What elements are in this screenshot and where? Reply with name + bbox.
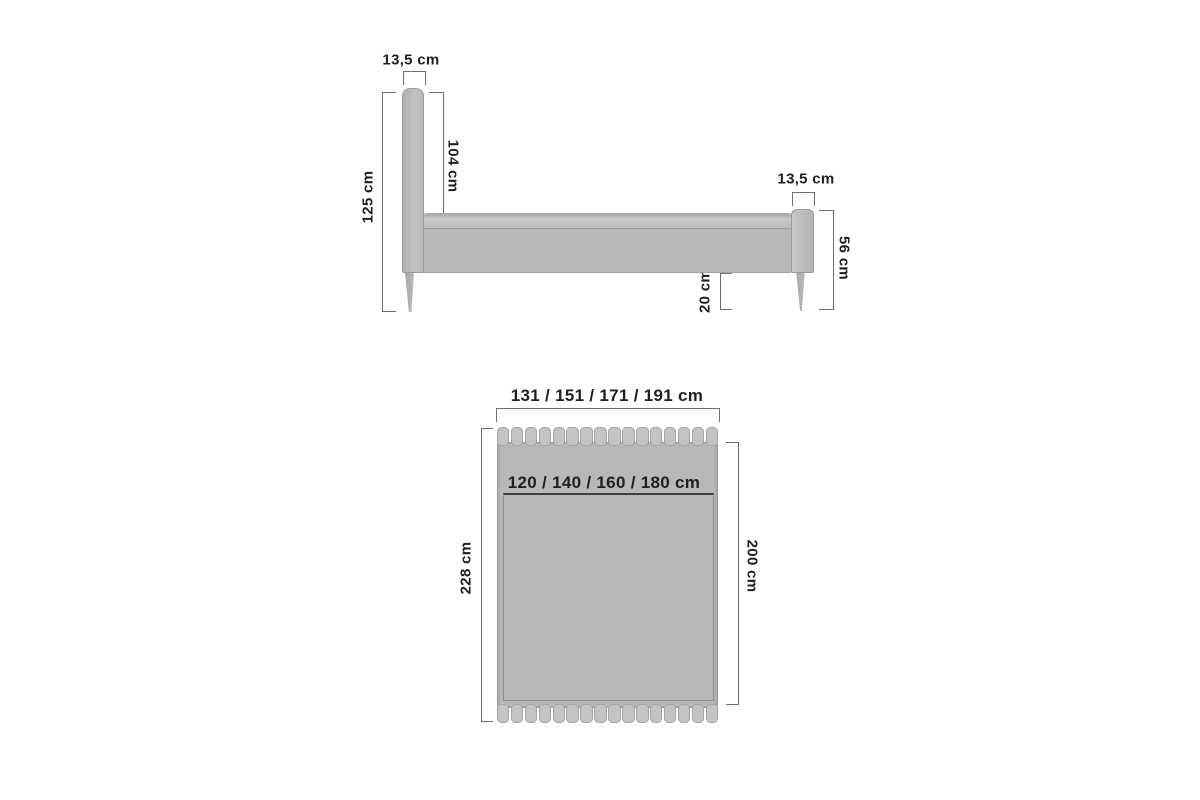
bed-frame-rail bbox=[423, 228, 791, 273]
bed-dimension-diagram: 13,5 cm 125 cm 104 cm 26 cm 13,5 cm 56 c… bbox=[0, 0, 1200, 800]
dim-footboard-thickness-label: 13,5 cm bbox=[777, 171, 834, 188]
dim-footboard-height-tick-bottom bbox=[819, 309, 833, 310]
tufting-segment bbox=[636, 704, 648, 723]
footboard-tufting bbox=[496, 704, 719, 723]
dim-overall-length-label: 228 cm bbox=[458, 542, 475, 595]
tufting-segment bbox=[650, 427, 662, 446]
tufting-segment bbox=[664, 704, 676, 723]
tufting-segment bbox=[566, 704, 578, 723]
tufting-segment bbox=[608, 427, 620, 446]
dim-overall-length-tick-bottom bbox=[481, 721, 493, 722]
dim-headboard-height-label: 104 cm bbox=[445, 140, 462, 193]
dim-total-height-tick-top bbox=[382, 92, 396, 93]
headboard-panel bbox=[402, 88, 424, 273]
tufting-segment bbox=[525, 704, 537, 723]
dim-total-height-line bbox=[382, 92, 383, 312]
tufting-segment bbox=[566, 427, 578, 446]
tufting-segment bbox=[511, 427, 523, 446]
tufting-segment bbox=[678, 427, 690, 446]
tufting-segment bbox=[706, 427, 718, 446]
tufting-segment bbox=[650, 704, 662, 723]
tufting-segment bbox=[692, 427, 704, 446]
tufting-segment bbox=[692, 704, 704, 723]
dim-overall-width-bracket bbox=[496, 408, 720, 422]
front-leg bbox=[404, 273, 415, 312]
dim-footboard-height-label: 56 cm bbox=[836, 236, 853, 280]
dim-headboard-thickness-label: 13,5 cm bbox=[382, 52, 439, 69]
tufting-segment bbox=[553, 427, 565, 446]
dim-footboard-height-line bbox=[833, 210, 834, 310]
dim-headboard-height-tick-top bbox=[429, 92, 443, 93]
footboard-panel bbox=[791, 209, 814, 273]
tufting-segment bbox=[664, 427, 676, 446]
tufting-segment bbox=[525, 427, 537, 446]
dim-footboard-thickness-bracket bbox=[792, 192, 815, 206]
dim-clearance-label: 20 cm bbox=[697, 269, 714, 313]
tufting-segment bbox=[622, 427, 634, 446]
tufting-segment bbox=[539, 704, 551, 723]
tufting-segment bbox=[594, 704, 606, 723]
dim-clearance-tick-bottom bbox=[720, 309, 732, 310]
tufting-segment bbox=[539, 427, 551, 446]
rear-leg bbox=[795, 273, 806, 311]
dim-overall-width-label: 131 / 151 / 171 / 191 cm bbox=[511, 386, 703, 406]
dim-mattress-length-tick-bottom bbox=[726, 704, 738, 705]
mattress-edge bbox=[423, 213, 791, 228]
tufting-segment bbox=[511, 704, 523, 723]
dim-total-height-tick-bottom bbox=[382, 311, 396, 312]
tufting-segment bbox=[678, 704, 690, 723]
dim-mattress-width-label: 120 / 140 / 160 / 180 cm bbox=[508, 473, 700, 493]
dim-headboard-thickness-bracket bbox=[403, 71, 426, 85]
dim-clearance-line bbox=[720, 273, 721, 310]
tufting-segment bbox=[580, 427, 592, 446]
tufting-segment bbox=[706, 704, 718, 723]
tufting-segment bbox=[622, 704, 634, 723]
tufting-segment bbox=[636, 427, 648, 446]
mattress-plan bbox=[503, 493, 714, 701]
tufting-segment bbox=[594, 427, 606, 446]
headboard-tufting bbox=[496, 427, 719, 446]
tufting-segment bbox=[497, 704, 509, 723]
tufting-segment bbox=[553, 704, 565, 723]
dim-mattress-length-tick-top bbox=[726, 442, 738, 443]
dim-mattress-length-label: 200 cm bbox=[744, 540, 761, 593]
tufting-segment bbox=[580, 704, 592, 723]
dim-overall-length-line bbox=[481, 428, 482, 722]
dim-mattress-length-line bbox=[738, 442, 739, 705]
dim-clearance-tick-top bbox=[720, 273, 732, 274]
dim-overall-length-tick-top bbox=[481, 428, 493, 429]
dim-footboard-height-tick-top bbox=[819, 210, 833, 211]
tufting-segment bbox=[497, 427, 509, 446]
dim-total-height-label: 125 cm bbox=[360, 171, 377, 224]
tufting-segment bbox=[608, 704, 620, 723]
